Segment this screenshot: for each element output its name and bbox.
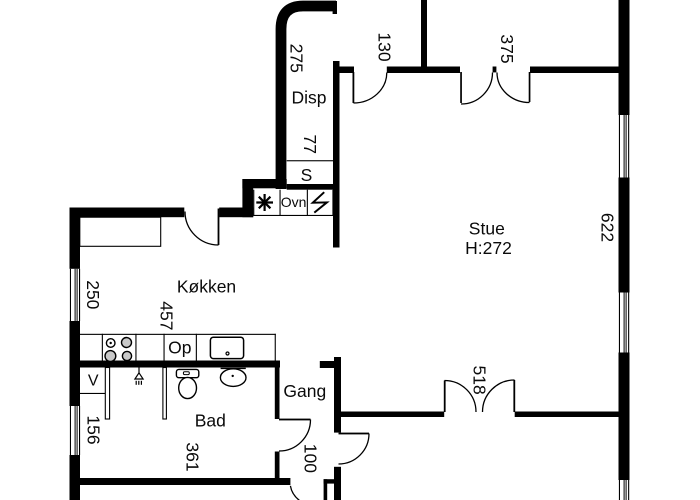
svg-text:361: 361	[182, 442, 202, 471]
svg-text:156: 156	[83, 415, 103, 444]
svg-text:Gang: Gang	[283, 381, 326, 401]
svg-text:Ovn: Ovn	[281, 194, 307, 210]
svg-text:375: 375	[497, 34, 517, 63]
svg-text:275: 275	[287, 44, 307, 73]
svg-text:S: S	[301, 165, 313, 185]
svg-text:V: V	[88, 373, 99, 390]
svg-text:457: 457	[157, 301, 177, 330]
svg-text:H:272: H:272	[465, 238, 512, 258]
svg-text:100: 100	[300, 444, 320, 473]
svg-text:Stue: Stue	[469, 218, 505, 238]
svg-text:250: 250	[83, 280, 103, 309]
svg-text:Disp: Disp	[291, 88, 326, 108]
svg-text:Køkken: Køkken	[177, 276, 236, 296]
svg-text:130: 130	[374, 32, 394, 61]
svg-text:Bad: Bad	[195, 410, 226, 430]
svg-text:518: 518	[469, 365, 489, 394]
svg-text:77: 77	[300, 134, 320, 153]
svg-text:622: 622	[598, 213, 618, 242]
svg-text:Op: Op	[168, 337, 191, 357]
